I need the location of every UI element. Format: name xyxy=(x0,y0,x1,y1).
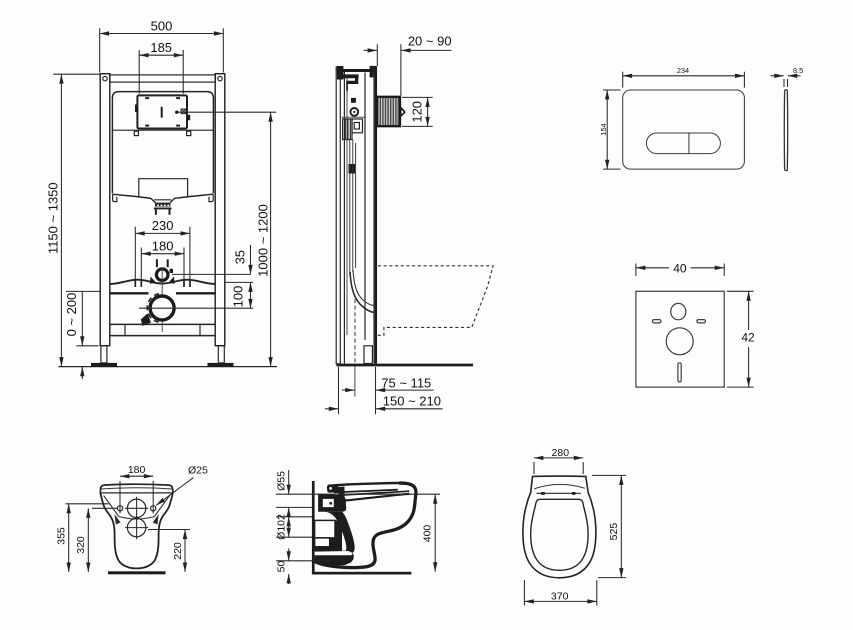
svg-text:35: 35 xyxy=(232,250,247,264)
svg-text:230: 230 xyxy=(152,218,174,233)
svg-text:50: 50 xyxy=(276,561,288,573)
svg-text:370: 370 xyxy=(551,591,569,603)
svg-text:500: 500 xyxy=(151,19,173,34)
svg-text:1000 ~ 1200: 1000 ~ 1200 xyxy=(256,204,271,277)
svg-text:Ø55: Ø55 xyxy=(276,471,288,491)
svg-text:42: 42 xyxy=(741,331,755,345)
svg-text:75 ~ 115: 75 ~ 115 xyxy=(381,376,431,391)
svg-text:320: 320 xyxy=(75,536,87,554)
svg-text:280: 280 xyxy=(552,447,570,459)
svg-text:1150 ~ 1350: 1150 ~ 1350 xyxy=(45,182,60,254)
svg-text:154: 154 xyxy=(599,123,608,135)
svg-text:20 ~ 90: 20 ~ 90 xyxy=(408,34,452,49)
svg-text:185: 185 xyxy=(150,40,172,55)
svg-text:220: 220 xyxy=(172,542,184,560)
svg-text:100: 100 xyxy=(231,286,246,308)
svg-text:120: 120 xyxy=(410,101,425,123)
svg-text:8.5: 8.5 xyxy=(793,66,803,75)
svg-text:355: 355 xyxy=(56,527,68,545)
svg-text:150 ~ 210: 150 ~ 210 xyxy=(383,394,441,409)
svg-text:Ø25: Ø25 xyxy=(188,465,208,477)
svg-text:40: 40 xyxy=(673,261,687,275)
svg-text:0 ~ 200: 0 ~ 200 xyxy=(64,293,79,337)
svg-text:525: 525 xyxy=(608,523,620,541)
svg-text:400: 400 xyxy=(422,525,434,543)
svg-text:180: 180 xyxy=(128,464,146,476)
svg-text:234: 234 xyxy=(677,66,689,75)
svg-text:180: 180 xyxy=(152,238,174,253)
svg-text:Ø102: Ø102 xyxy=(276,514,288,540)
